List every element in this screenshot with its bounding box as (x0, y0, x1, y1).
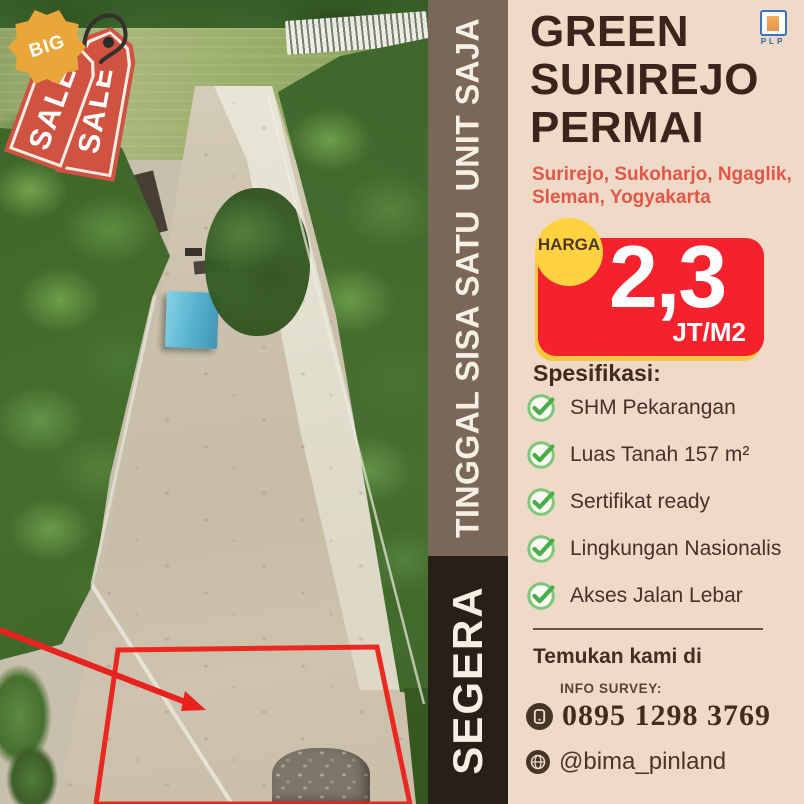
social-contact-row: @bima_pinland (526, 748, 726, 776)
info-panel: PLP GREEN SURIREJO PERMAI Surirejo, Suko… (508, 0, 804, 804)
title-line: GREEN (530, 8, 759, 56)
property-location: Surirejo, Sukoharjo, Ngaglik, Sleman, Yo… (532, 163, 792, 209)
plot-pointer-arrowhead (181, 691, 206, 711)
divider-line (533, 628, 763, 630)
segera-text: SEGERA (444, 585, 492, 774)
spec-heading: Spesifikasi: (533, 360, 661, 387)
spec-item-label: Luas Tanah 157 m² (570, 443, 749, 467)
find-us-heading: Temukan kami di (533, 645, 702, 669)
check-icon (526, 533, 558, 565)
big-badge-label: BIG (26, 31, 68, 63)
curb-line (268, 95, 424, 704)
title-line: SURIREJO (530, 56, 759, 104)
logo-document-icon (767, 16, 779, 31)
vertical-banner: TINGGAL SISA SATU UNIT SAJA SEGERA (428, 0, 508, 804)
sale-tags-cluster: SALE SALE BIG (8, 0, 158, 205)
spec-item-label: Akses Jalan Lebar (570, 584, 743, 608)
curb-line (92, 295, 155, 585)
social-handle: @bima_pinland (559, 748, 726, 776)
check-icon (526, 486, 558, 518)
vertical-banner-text: TINGGAL SISA SATU UNIT SAJA (450, 18, 487, 538)
location-line: Sleman, Yogyakarta (532, 186, 792, 209)
spec-list: SHM Pekarangan Luas Tanah 157 m² Sertifi… (526, 392, 781, 612)
price-label-badge: HARGA (535, 218, 603, 286)
property-title: GREEN SURIREJO PERMAI (530, 8, 759, 152)
location-line: Surirejo, Sukoharjo, Ngaglik, (532, 163, 792, 186)
title-line: PERMAI (530, 104, 759, 152)
spec-item: Lingkungan Nasionalis (526, 533, 781, 565)
spec-item-label: SHM Pekarangan (570, 396, 736, 420)
price-unit: JT/M2 (672, 317, 746, 348)
phone-number: 0895 1298 3769 (562, 699, 771, 733)
plot-boundary-outline (96, 647, 410, 804)
check-icon (526, 392, 558, 424)
phone-icon (526, 703, 553, 730)
globe-icon (526, 750, 550, 774)
info-survey-label: INFO SURVEY: (560, 681, 662, 696)
spec-item: SHM Pekarangan (526, 392, 781, 424)
check-icon (526, 580, 558, 612)
spec-item: Akses Jalan Lebar (526, 580, 781, 612)
spec-item-label: Lingkungan Nasionalis (570, 537, 781, 561)
check-icon (526, 439, 558, 471)
plp-logo-mark (760, 10, 787, 36)
spec-item-label: Sertifikat ready (570, 490, 710, 514)
vertical-banner-brown: TINGGAL SISA SATU UNIT SAJA (428, 0, 508, 556)
phone-contact-row: 0895 1298 3769 (526, 699, 771, 733)
plot-pointer-arrow (0, 630, 188, 703)
vertical-banner-black: SEGERA (428, 556, 508, 804)
property-sale-flyer: SALE SALE BIG TINGGAL SISA SATU UNIT SAJ… (0, 0, 804, 804)
spec-item: Luas Tanah 157 m² (526, 439, 781, 471)
spec-item: Sertifikat ready (526, 486, 781, 518)
